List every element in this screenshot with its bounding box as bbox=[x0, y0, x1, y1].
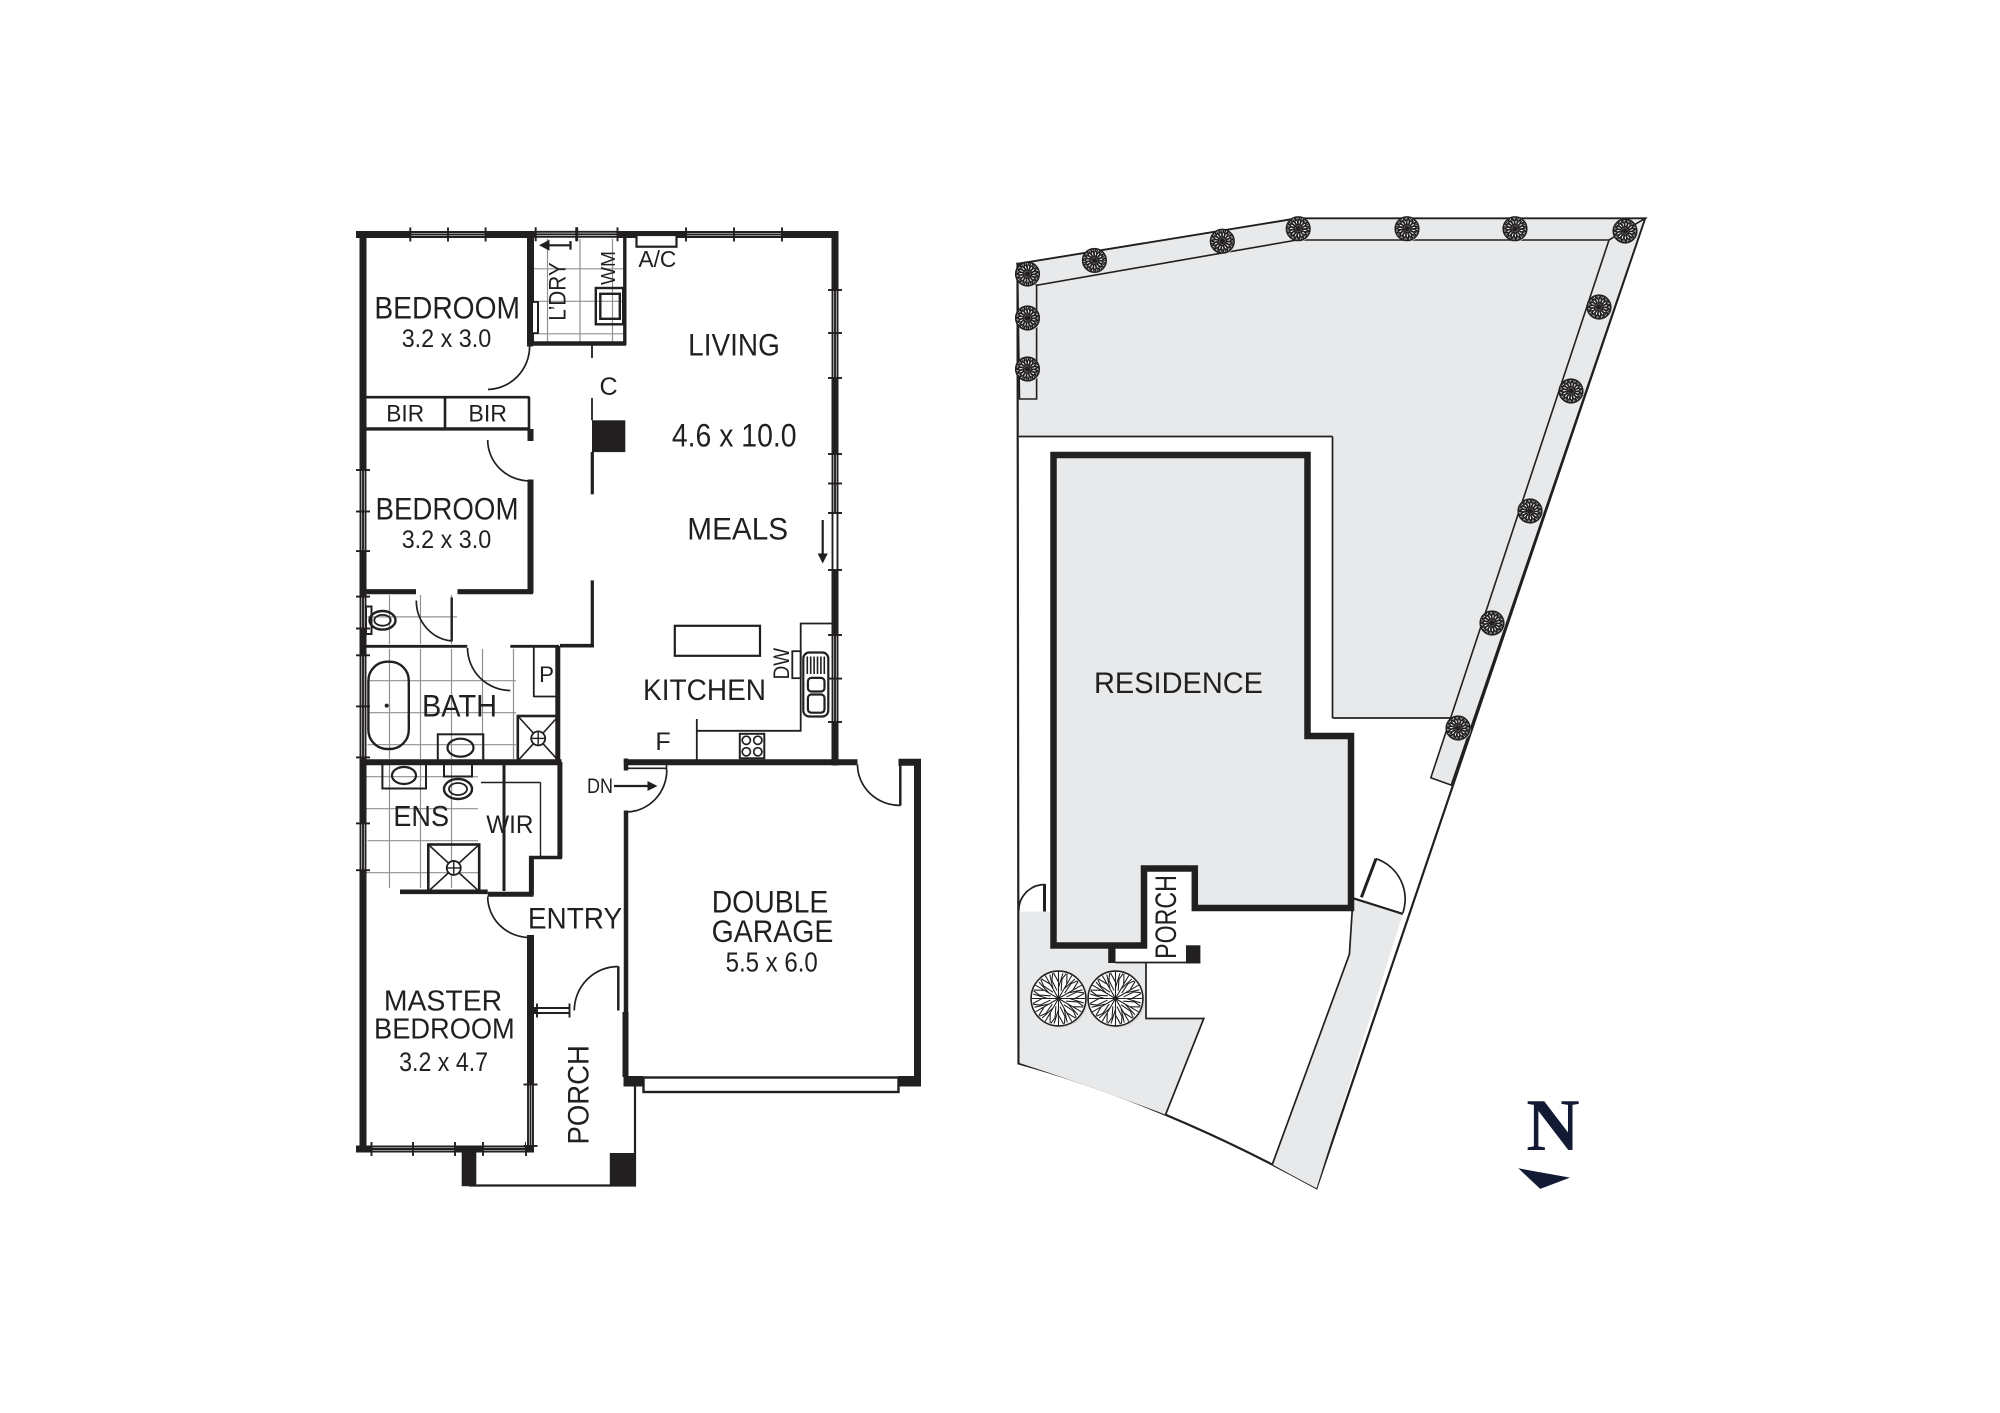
svg-text:MEALS: MEALS bbox=[687, 511, 788, 546]
svg-text:BIR: BIR bbox=[386, 401, 424, 428]
svg-text:DN: DN bbox=[587, 775, 613, 798]
svg-text:3.2 x 3.0: 3.2 x 3.0 bbox=[402, 325, 492, 353]
svg-text:BEDROOM: BEDROOM bbox=[374, 291, 520, 326]
svg-text:DW: DW bbox=[769, 648, 794, 680]
svg-text:4.6 x 10.0: 4.6 x 10.0 bbox=[672, 417, 797, 453]
svg-text:N: N bbox=[1526, 1085, 1579, 1167]
svg-text:LIVING: LIVING bbox=[688, 328, 780, 363]
svg-text:KITCHEN: KITCHEN bbox=[643, 674, 766, 707]
svg-text:P: P bbox=[539, 662, 554, 687]
svg-text:WM: WM bbox=[598, 251, 620, 285]
svg-text:ENS: ENS bbox=[393, 801, 449, 833]
svg-text:RESIDENCE: RESIDENCE bbox=[1094, 667, 1263, 700]
svg-text:BIR: BIR bbox=[468, 401, 507, 428]
svg-text:L’DRY: L’DRY bbox=[545, 262, 572, 321]
svg-text:A/C: A/C bbox=[638, 246, 676, 272]
svg-text:F: F bbox=[655, 728, 670, 756]
svg-text:C: C bbox=[599, 373, 617, 401]
svg-text:BATH: BATH bbox=[422, 689, 497, 724]
svg-text:PORCH: PORCH bbox=[1150, 875, 1183, 959]
svg-text:BEDROOM: BEDROOM bbox=[376, 492, 519, 527]
svg-text:GARAGE: GARAGE bbox=[712, 914, 834, 949]
svg-text:5.5 x 6.0: 5.5 x 6.0 bbox=[726, 947, 818, 978]
svg-text:3.2 x 4.7: 3.2 x 4.7 bbox=[399, 1047, 488, 1077]
svg-text:BEDROOM: BEDROOM bbox=[374, 1014, 515, 1046]
svg-text:WIR: WIR bbox=[486, 812, 533, 839]
svg-text:PORCH: PORCH bbox=[563, 1045, 596, 1144]
svg-text:ENTRY: ENTRY bbox=[528, 903, 622, 936]
svg-text:3.2 x 3.0: 3.2 x 3.0 bbox=[402, 526, 492, 554]
